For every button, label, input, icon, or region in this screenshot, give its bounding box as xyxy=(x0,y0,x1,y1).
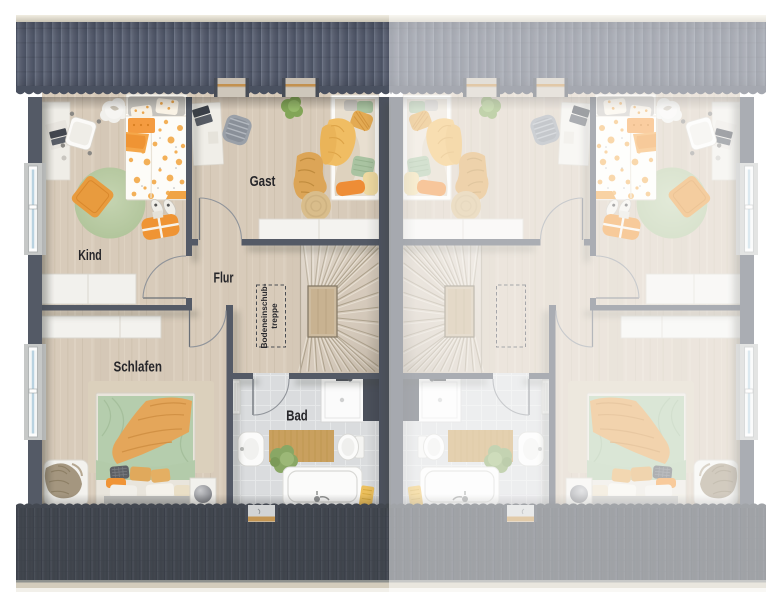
svg-text:Kind: Kind xyxy=(78,248,102,264)
svg-text:Bad: Bad xyxy=(286,409,308,425)
svg-text:Flur: Flur xyxy=(214,271,234,287)
svg-text:Schlafen: Schlafen xyxy=(113,360,162,376)
svg-text:treppe: treppe xyxy=(269,303,279,329)
svg-text:Gast: Gast xyxy=(250,174,276,190)
svg-text:Bodeneinschub-: Bodeneinschub- xyxy=(259,283,269,348)
